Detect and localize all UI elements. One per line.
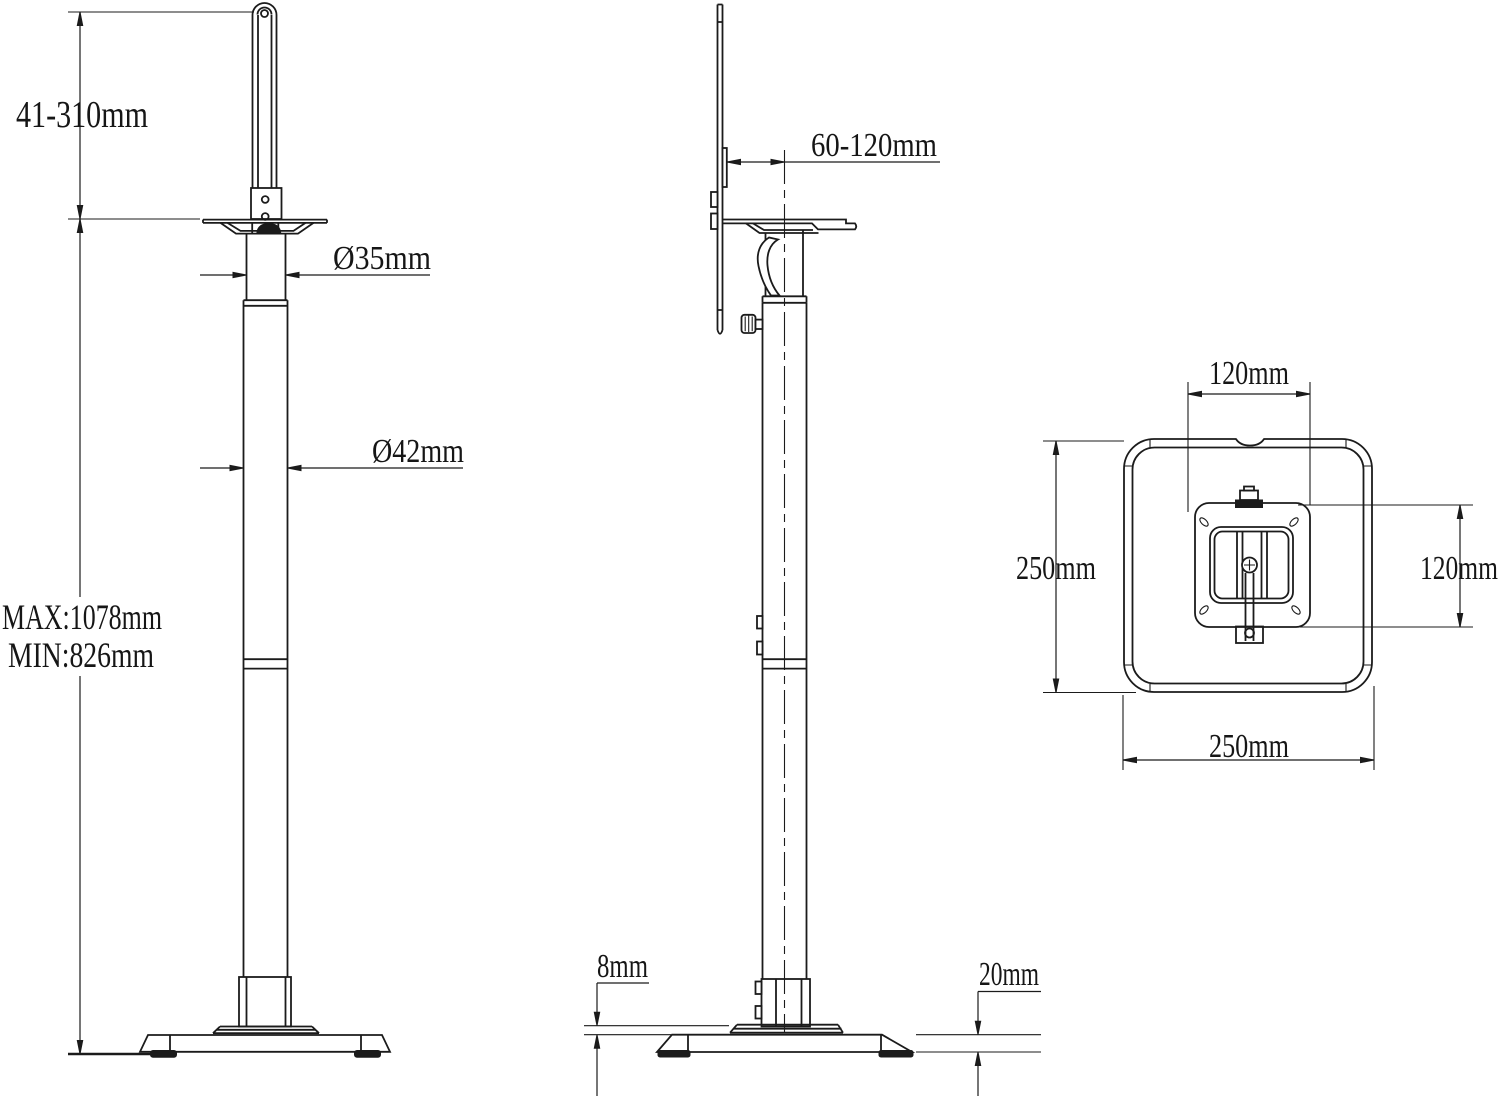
lower-pole [244, 300, 288, 977]
dim-label-mount-plate-depth: 120mm [1420, 550, 1498, 587]
base-foot [879, 1051, 913, 1058]
dim-label-mount-plate-width: 120mm [1209, 355, 1289, 392]
arrowhead-icon [1297, 391, 1311, 396]
base-column-socket [239, 977, 291, 1027]
arrowhead-icon [1457, 614, 1462, 628]
base-top-plate-front [213, 1027, 319, 1034]
dim-label-base-thickness: 20mm [979, 956, 1039, 993]
dimension-base-thickness: 20mm [916, 956, 1041, 1096]
cable-clip [757, 616, 763, 629]
bracket-base-silhouette [257, 224, 281, 234]
speaker-plate-side [711, 5, 727, 334]
bracket-pivot-hole [261, 10, 268, 17]
dimension-bracket-depth-range: 60-120mm [727, 127, 940, 165]
arrowhead-icon [286, 272, 300, 277]
dim-label-base-depth: 250mm [1016, 550, 1096, 587]
base-column-socket-side [756, 979, 811, 1027]
arrowhead-icon [727, 159, 741, 164]
technical-drawing-speaker-stand: 41-310mm MAX:1078mm MIN:826mm Ø35mm Ø42m… [0, 0, 1500, 1103]
base-front [140, 1035, 390, 1057]
arrowhead-icon [594, 1012, 599, 1026]
arrowhead-icon [1361, 757, 1375, 762]
top-view: 120mm 120mm 250mm 250mm [1016, 355, 1498, 770]
speaker-bracket-arm [251, 3, 282, 220]
arrowhead-icon [975, 1052, 980, 1066]
dim-label-top-plate-thickness: 8mm [597, 948, 648, 985]
arrowhead-icon [77, 12, 82, 26]
dim-label-bracket-height-range: 41-310mm [16, 94, 148, 136]
dim-label-base-width: 250mm [1209, 728, 1289, 765]
top-clamp [1240, 491, 1258, 501]
lower-pole-side [757, 303, 807, 979]
dimension-top-plate-thickness: 8mm [584, 948, 729, 1096]
base-side [657, 1035, 913, 1057]
dimension-upper-pole-diameter: Ø35mm [200, 240, 431, 278]
arrowhead-icon [1053, 441, 1058, 455]
arrowhead-icon [771, 159, 785, 164]
dim-label-upper-pole-diameter: Ø35mm [333, 240, 431, 277]
dimension-base-depth: 250mm [1016, 441, 1136, 693]
thumbscrew-knob [742, 315, 763, 333]
plate-clip [711, 192, 718, 207]
upper-pole [247, 234, 286, 301]
arrowhead-icon [77, 206, 82, 220]
arrowhead-icon [1053, 679, 1058, 693]
arrowhead-icon [77, 1041, 82, 1055]
dimension-lower-pole-diameter: Ø42mm [200, 433, 464, 471]
arrowhead-icon [1457, 505, 1462, 519]
top-clamp-bar [1236, 500, 1263, 508]
pole-clamp-collar [244, 300, 288, 306]
dim-label-lower-pole-diameter: Ø42mm [372, 433, 464, 470]
base-foot [355, 1051, 381, 1058]
dim-label-min-height: MIN:826mm [8, 635, 154, 675]
side-view: 60-120mm 8mm 20mm [584, 5, 1041, 1097]
arrowhead-icon [1123, 757, 1137, 762]
drawing-svg: 41-310mm MAX:1078mm MIN:826mm Ø35mm Ø42m… [0, 0, 1500, 1103]
arrowhead-icon [77, 219, 82, 233]
dimension-bracket-height-range: 41-310mm [16, 12, 254, 219]
pole-top-plate [203, 220, 327, 234]
dim-label-max-height: MAX:1078mm [2, 597, 162, 637]
top-clamp-step [1244, 487, 1254, 491]
arrowhead-icon [1188, 391, 1202, 396]
cable-clip [757, 642, 763, 655]
arrowhead-icon [594, 1035, 599, 1049]
base-foot [658, 1051, 690, 1058]
arrowhead-icon [288, 465, 302, 470]
socket-tab [756, 982, 762, 995]
plate-clip [711, 214, 718, 230]
arrowhead-icon [230, 465, 244, 470]
dimension-total-height: MAX:1078mm MIN:826mm [2, 219, 162, 1054]
dim-label-bracket-depth-range: 60-120mm [811, 127, 937, 164]
arrowhead-icon [975, 1021, 980, 1035]
plate-stop-lug [723, 148, 727, 187]
dimension-base-width: 250mm [1123, 686, 1374, 770]
socket-tab [756, 1006, 762, 1019]
mount-plate-top [1195, 487, 1310, 644]
handle-side [758, 238, 780, 296]
pole-top-plate-side [723, 220, 857, 234]
front-view: 41-310mm MAX:1078mm MIN:826mm Ø35mm Ø42m… [2, 3, 464, 1057]
arrowhead-icon [233, 272, 247, 277]
